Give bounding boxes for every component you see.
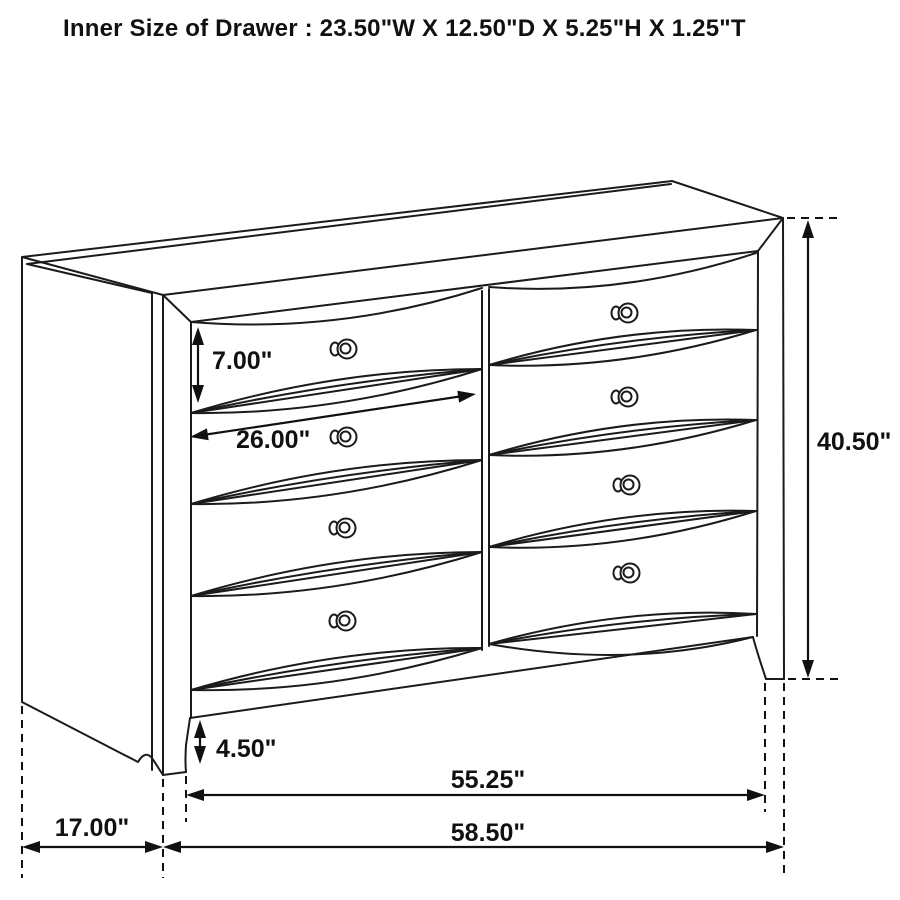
left-foot (186, 718, 191, 772)
dimension-label-face-height: 7.00" (212, 347, 273, 375)
drawer-lens (191, 648, 482, 690)
drawer-knob (612, 388, 638, 407)
drawer-knob (330, 519, 356, 538)
drawer-knob (614, 476, 640, 495)
drawer-grid (191, 253, 756, 690)
dimension-overall-width: 58.50" (163, 819, 784, 853)
dimension-drawer-face-height: 7.00" (192, 327, 273, 403)
drawer-knob (331, 340, 357, 359)
dimension-label-side-depth: 17.00" (55, 814, 129, 842)
drawer-lens (489, 613, 756, 655)
drawer-lens (489, 419, 756, 455)
drawer-knob (612, 304, 638, 323)
right-front-edge (783, 218, 784, 679)
drawer-knob (614, 564, 640, 583)
drawer-top-curve-right (489, 253, 756, 289)
dimension-label-front-width: 55.25" (451, 766, 525, 794)
drawer-lens (489, 329, 756, 365)
dimension-diagram: Inner Size of Drawer : 23.50"W X 12.50"D… (0, 0, 900, 900)
extension-lines (22, 683, 784, 878)
dimension-overall-height: 40.50" (787, 218, 891, 679)
knobs (330, 304, 640, 631)
dimension-label-base-height: 4.50" (216, 735, 277, 763)
dimension-front-width: 55.25" (186, 766, 765, 801)
drawer-top-curve-left (191, 288, 482, 324)
drawer-knob (330, 612, 356, 631)
drawer-lens (191, 369, 482, 413)
cabinet-outline (22, 181, 784, 775)
dresser-drawing: 7.00" 26.00" 40.50" 4.50" (0, 0, 900, 900)
side-panel (22, 257, 163, 775)
center-divider (482, 289, 489, 650)
top-face (22, 181, 783, 295)
right-inner-stile (757, 251, 758, 636)
dimension-label-overall-width: 58.50" (451, 819, 525, 847)
drawer-knob (331, 428, 357, 447)
drawer-lens (191, 552, 482, 596)
drawer-lens (191, 460, 482, 504)
dimension-side-depth: 17.00" (22, 814, 163, 853)
dimension-label-drawer-width: 26.00" (236, 426, 310, 454)
left-foot-bottom (163, 772, 186, 775)
drawer-lens (489, 511, 756, 548)
dimension-base-height: 4.50" (194, 720, 277, 764)
dimension-label-overall-height: 40.50" (817, 428, 891, 456)
right-foot (753, 637, 766, 679)
